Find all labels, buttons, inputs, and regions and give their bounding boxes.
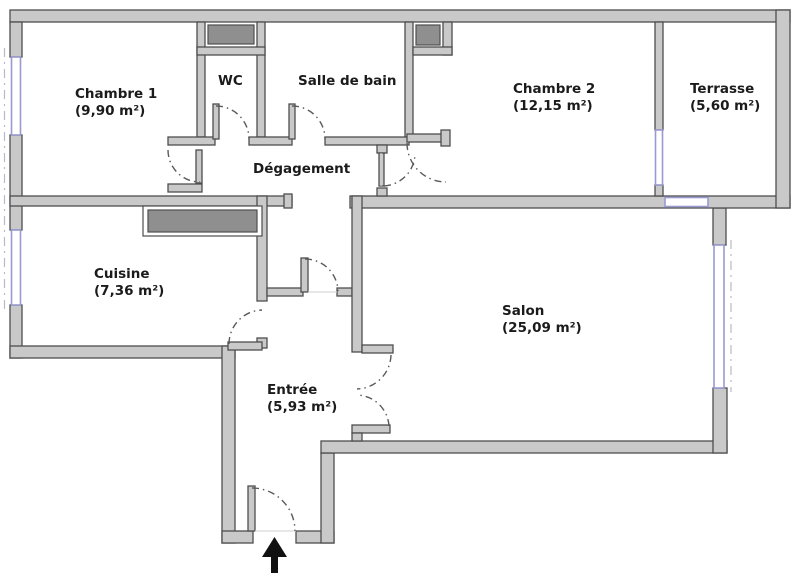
wall-segment	[377, 145, 387, 153]
degagement-passage-door-arc	[384, 154, 415, 186]
entrance-door-arc	[252, 488, 295, 531]
room-name: Chambre 2	[513, 81, 595, 97]
wall-segment	[10, 196, 292, 206]
wall-segment	[413, 47, 452, 55]
room-area: (7,36 m²)	[94, 283, 164, 300]
room-name: Cuisine	[94, 266, 150, 282]
wall-segment	[325, 137, 409, 145]
room-label-entree: Entrée (5,93 m²)	[267, 382, 337, 416]
wall-segment	[257, 22, 265, 137]
wall-segment	[249, 137, 292, 145]
wc-door-leaf	[213, 104, 219, 139]
room-area: (9,90 m²)	[75, 103, 157, 120]
wall-segment	[362, 345, 393, 353]
wall-segment	[267, 288, 303, 296]
wall-segment	[377, 188, 387, 196]
room-label-wc: WC	[218, 73, 243, 90]
room-label-chambre2: Chambre 2 (12,15 m²)	[513, 81, 595, 115]
terrasse-access-window	[665, 198, 708, 207]
room-name: Terrasse	[690, 81, 754, 97]
wall-segment	[222, 346, 235, 543]
room-area: (12,15 m²)	[513, 98, 595, 115]
floor-plan: Chambre 1 (9,90 m²) WC Salle de bain Cha…	[0, 0, 800, 578]
wc-duct-block	[208, 25, 254, 44]
room-label-salon: Salon (25,09 m²)	[502, 303, 582, 337]
chambre1-window	[12, 57, 21, 135]
wall-segment	[197, 22, 205, 137]
wall-segment	[10, 135, 22, 230]
chambre2-door-jamb	[441, 130, 450, 146]
salon-double-door-arc-top	[357, 355, 391, 389]
wall-segment	[776, 10, 790, 208]
entree-degagement-door-arc	[305, 259, 338, 291]
room-label-terrasse: Terrasse (5,60 m²)	[690, 81, 760, 115]
chambre2-door-arc	[407, 143, 446, 182]
chambre2-duct-block	[416, 25, 440, 45]
wall-segment	[321, 441, 727, 453]
wall-segment	[168, 184, 202, 192]
wall-segment	[337, 288, 352, 296]
wall-segment	[352, 196, 362, 352]
wall-segment	[713, 208, 726, 245]
wall-segment	[713, 388, 727, 453]
entrance-arrow-icon	[262, 537, 287, 573]
room-name: Dégagement	[253, 161, 350, 177]
wall-segment	[10, 346, 235, 358]
room-label-chambre1: Chambre 1 (9,90 m²)	[75, 86, 157, 120]
chambre1-door-arc	[168, 150, 200, 182]
chambre1-door-leaf	[196, 150, 202, 183]
salle-de-bain-door-arc	[292, 106, 325, 139]
room-label-salle-de-bain: Salle de bain	[298, 73, 396, 90]
wall-segment	[284, 194, 292, 208]
room-name: Chambre 1	[75, 86, 157, 102]
wall-segment	[222, 531, 253, 543]
salon-window	[714, 245, 724, 388]
chambre2-door-leaf	[407, 134, 443, 142]
cuisine-closet-block	[148, 210, 257, 232]
entrance-arrow-stem	[271, 553, 278, 573]
wall-segment	[197, 47, 265, 55]
room-label-degagement: Dégagement	[253, 161, 350, 178]
cuisine-door-leaf	[228, 342, 262, 350]
wall-segment	[168, 137, 215, 145]
room-area: (5,60 m²)	[690, 98, 760, 115]
wall-segment	[350, 196, 790, 208]
entrance-door-leaf	[248, 486, 255, 531]
wall-segment	[352, 433, 362, 441]
room-name: Entrée	[267, 382, 317, 398]
wc-door-arc	[216, 106, 249, 139]
room-area: (5,93 m²)	[267, 399, 337, 416]
room-name: WC	[218, 73, 243, 89]
wall-segment	[321, 453, 334, 543]
room-name: Salon	[502, 303, 544, 319]
wall-segment	[405, 22, 413, 137]
wall-segment	[10, 22, 22, 57]
wall-segment	[352, 425, 390, 433]
room-label-cuisine: Cuisine (7,36 m²)	[94, 266, 164, 300]
entree-degagement-door-leaf	[301, 258, 308, 292]
wall-segment	[655, 22, 663, 130]
wall-segment	[655, 185, 663, 196]
room-area: (25,09 m²)	[502, 320, 582, 337]
wall-segment	[10, 10, 790, 22]
salon-double-door-arc-bottom	[357, 395, 389, 426]
salle-de-bain-door-leaf	[289, 104, 295, 139]
room-name: Salle de bain	[298, 73, 396, 89]
chambre2-terrasse-window	[656, 130, 663, 185]
cuisine-window	[12, 230, 21, 305]
